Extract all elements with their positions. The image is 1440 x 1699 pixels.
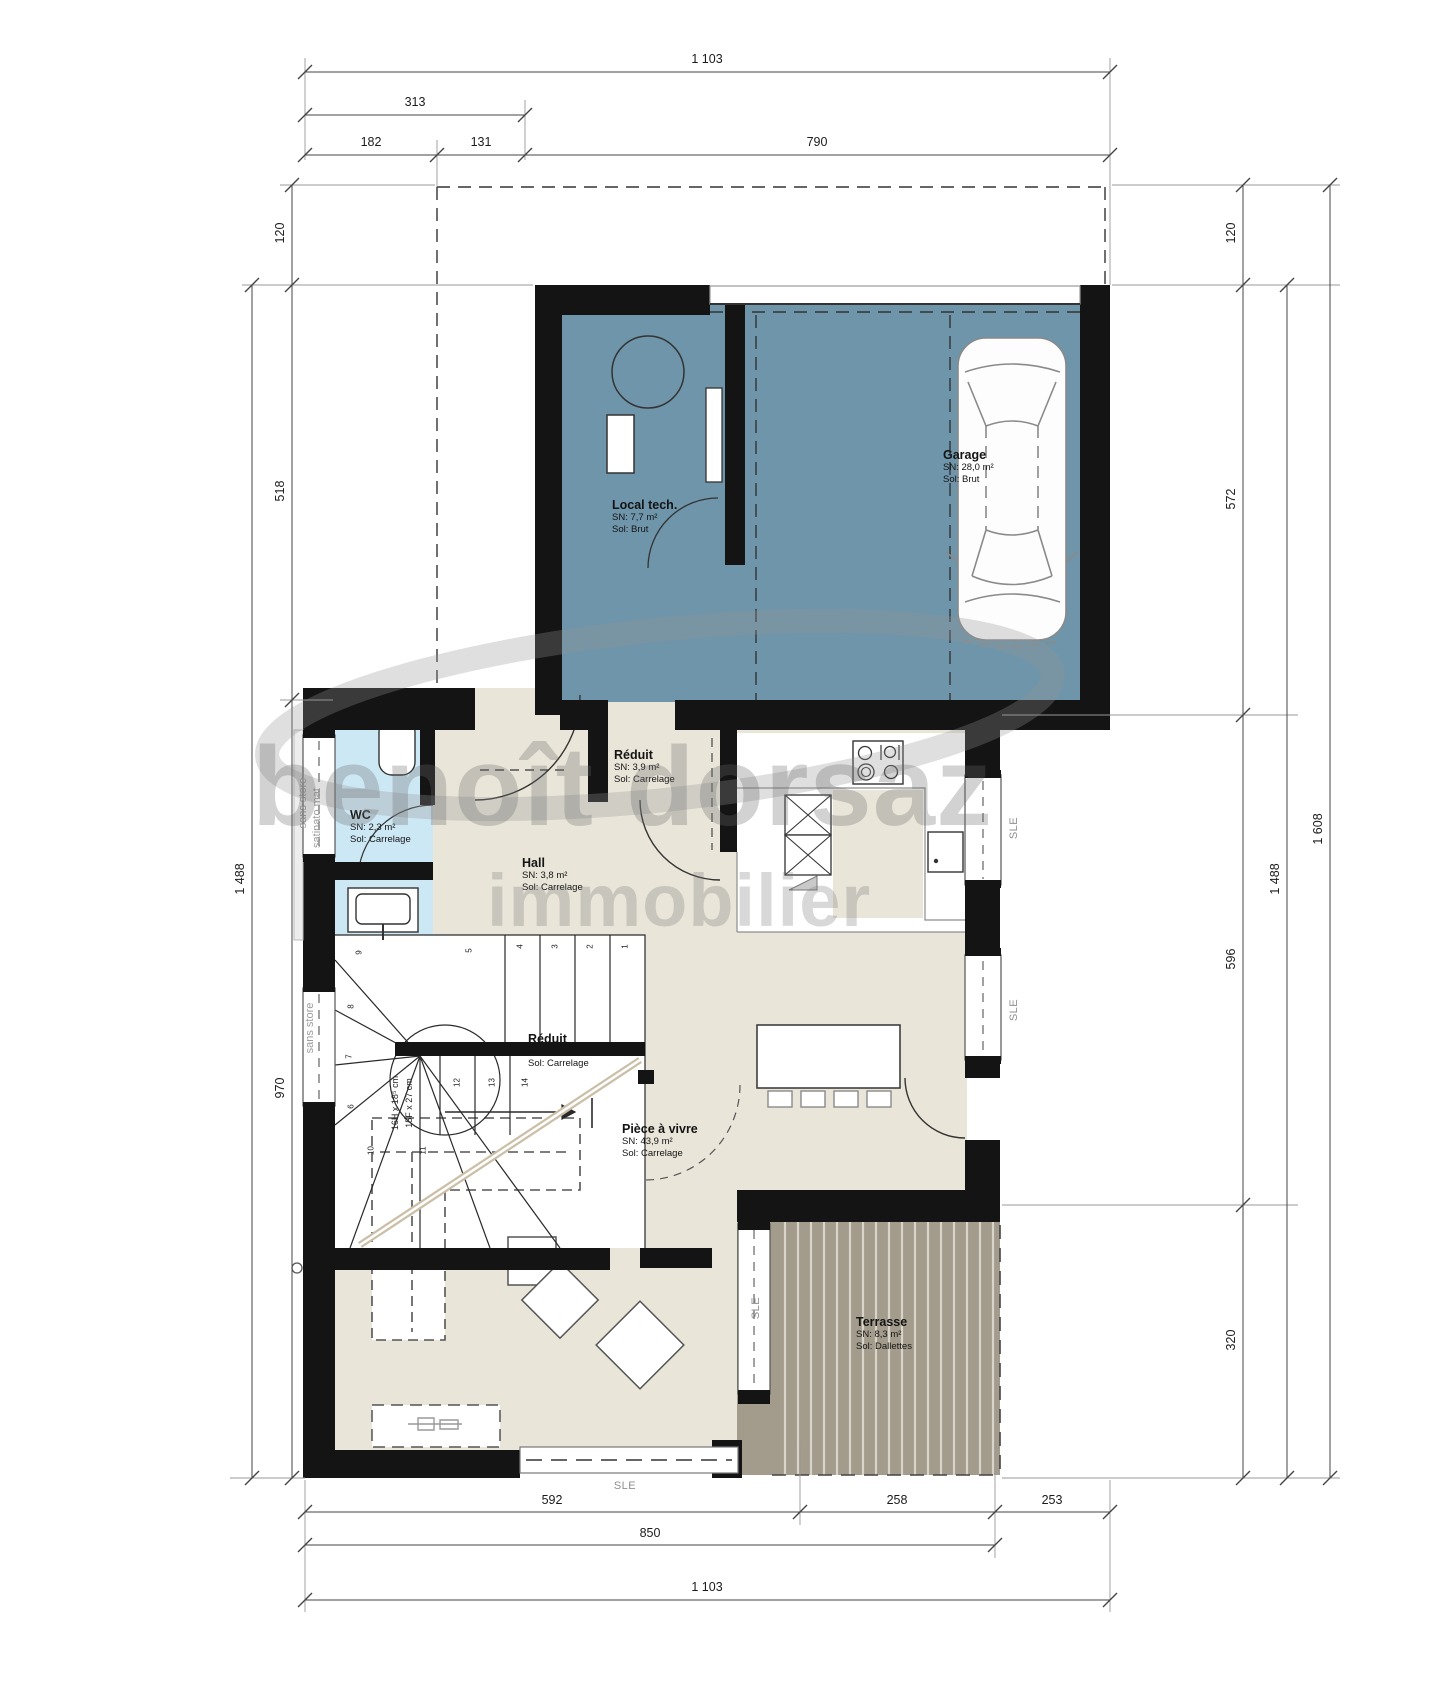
- stair-step-number: 3: [551, 940, 560, 954]
- dim-left-seg3: 970: [273, 1046, 287, 1130]
- dim-bottom-total: 1 103: [665, 1580, 749, 1594]
- dim-top-group: 313: [373, 95, 457, 109]
- dim-left-seg1: 120: [273, 191, 287, 275]
- stair-step-number: 11: [419, 1144, 428, 1158]
- stair-dimensions-note-1: 16H x 18⁵ cm: [390, 1048, 400, 1158]
- blind-note-sans-store-2: sans store: [304, 963, 316, 1093]
- floor-plan-page: 1 103 313 182 131 790 120 518 970 1 488 …: [0, 0, 1440, 1699]
- dim-bottom-seg1: 592: [510, 1493, 594, 1507]
- dim-left-seg2: 518: [273, 449, 287, 533]
- dim-right-seg1: 120: [1224, 191, 1238, 275]
- stair-step-number: 13: [488, 1076, 497, 1090]
- room-label-local-tech: Local tech. SN: 7,7 m² Sol: Brut: [612, 498, 677, 535]
- stair-step-number: 12: [453, 1076, 462, 1090]
- stair-step-number: 7: [345, 1050, 354, 1064]
- stair-step-number: 8: [347, 1000, 356, 1014]
- window-label-sle-2: SLE: [1008, 980, 1020, 1040]
- stair-step-number: 5: [465, 944, 474, 958]
- room-label-reduit-haut: Réduit SN: 3,9 m² Sol: Carrelage: [614, 748, 675, 785]
- dim-top-total: 1 103: [665, 52, 749, 66]
- dim-bottom-seg2: 258: [855, 1493, 939, 1507]
- dim-top-seg2: 131: [439, 135, 523, 149]
- room-label-garage: Garage SN: 28,0 m² Sol: Brut: [943, 448, 994, 485]
- stair-step-number: 2: [586, 940, 595, 954]
- window-label-sle-4: SLE: [595, 1480, 655, 1492]
- window-label-sle-3: SLE: [750, 1278, 762, 1338]
- room-label-terrasse: Terrasse SN: 8,3 m² Sol: Dallettes: [856, 1315, 912, 1352]
- dim-top-seg1: 182: [329, 135, 413, 149]
- dim-right-total: 1 608: [1311, 787, 1325, 871]
- stair-step-number: 14: [521, 1076, 530, 1090]
- dim-left-total: 1 488: [233, 837, 247, 921]
- dim-right-seg4: 320: [1224, 1298, 1238, 1382]
- stair-step-number: 6: [347, 1100, 356, 1114]
- stair-dimensions-note-2: 15F x 27 cm: [404, 1048, 414, 1158]
- dim-right-seg3: 596: [1224, 917, 1238, 1001]
- room-label-wc: WC SN: 2,3 m² Sol: Carrelage: [350, 808, 411, 845]
- room-label-piece-a-vivre: Pièce à vivre SN: 43,9 m² Sol: Carrelage: [622, 1122, 698, 1159]
- stair-step-number: 10: [367, 1144, 376, 1158]
- dim-right-seg2: 572: [1224, 457, 1238, 541]
- room-label-hall: Hall SN: 3,8 m² Sol: Carrelage: [522, 856, 583, 893]
- dim-right-subtotal: 1 488: [1268, 837, 1282, 921]
- dim-top-seg3: 790: [775, 135, 859, 149]
- labels-layer: 1 103 313 182 131 790 120 518 970 1 488 …: [0, 0, 1440, 1699]
- blind-note-sans-store-1: sans store: [297, 738, 309, 868]
- dim-bottom-seg3: 253: [1010, 1493, 1094, 1507]
- room-label-reduit-bas: Réduit SN: 2,1 m² Sol: Carrelage: [528, 1032, 589, 1069]
- stair-step-number: 4: [516, 940, 525, 954]
- stair-step-number: 9: [355, 946, 364, 960]
- blind-note-satinato: satinato mat: [311, 753, 323, 883]
- stair-step-number: 1: [621, 940, 630, 954]
- dim-bottom-subtotal: 850: [608, 1526, 692, 1540]
- window-label-sle-1: SLE: [1008, 798, 1020, 858]
